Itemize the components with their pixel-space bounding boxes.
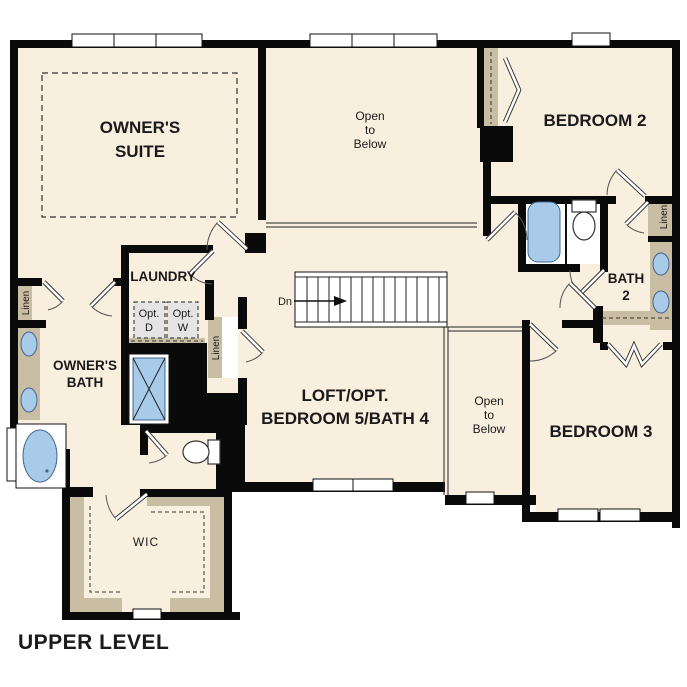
label-linen-owner: Linen <box>21 291 32 315</box>
window <box>466 492 494 504</box>
wall-bedroom2-bottom-b <box>606 196 616 204</box>
label-linen-hall: Linen <box>211 336 222 360</box>
window <box>353 479 393 491</box>
wall-linen-hall-right-a <box>238 297 247 329</box>
sink <box>21 332 37 356</box>
label-owners-suite-1: OWNER'S <box>100 118 181 137</box>
label-opt-dryer-1: Opt. <box>139 308 160 320</box>
wall-suite-right <box>258 48 266 220</box>
bathtub <box>23 430 57 482</box>
label-loft-1: LOFT/OPT. <box>302 386 389 405</box>
wall-bedroom3-top-a <box>522 320 530 330</box>
label-bath2-2: 2 <box>622 288 630 303</box>
plan-title: UPPER LEVEL <box>18 631 169 654</box>
wall-chunk-linen-toilet <box>207 393 247 425</box>
window <box>72 34 114 47</box>
bathtub-bath2 <box>528 202 560 262</box>
wic-shelf-right <box>210 492 224 612</box>
wall-laundry-left <box>121 245 129 345</box>
label-opt-washer-1: Opt. <box>173 308 194 320</box>
toilet-bath2 <box>572 200 596 240</box>
label-open-below-1c: Below <box>354 137 387 151</box>
label-bath2-1: BATH <box>608 271 645 286</box>
stairs <box>294 272 447 327</box>
label-open-below-2a: Open <box>474 394 503 408</box>
label-open-below-1b: to <box>365 123 375 137</box>
toilet-owner <box>183 440 220 464</box>
wall-linen-owner-bottom <box>18 320 46 328</box>
window <box>114 34 156 47</box>
floor-plan-page: OWNER'S SUITE Open to Below BEDROOM 2 BA… <box>0 0 687 687</box>
label-open-below-2b: to <box>484 408 494 422</box>
wall-toilet-left <box>140 425 148 455</box>
toilet-tank <box>572 200 596 212</box>
label-owners-bath-1: OWNER'S <box>53 358 117 373</box>
label-linen-bath2: Linen <box>659 205 670 229</box>
label-open-below-1a: Open <box>355 109 384 123</box>
label-opt-dryer-2: D <box>145 322 153 334</box>
window <box>310 34 352 47</box>
wall-wic-top-left <box>62 487 93 497</box>
wall-bath2-chunk <box>593 306 603 343</box>
label-bedroom2: BEDROOM 2 <box>544 111 647 130</box>
label-owners-suite-2: SUITE <box>115 142 165 161</box>
wall-bedroom2-west <box>483 160 491 236</box>
toilet-bowl <box>573 212 595 240</box>
window <box>572 33 610 46</box>
window <box>133 609 161 619</box>
window <box>156 34 202 47</box>
toilet-tank <box>208 440 220 464</box>
sink <box>653 291 669 313</box>
sink <box>21 388 37 412</box>
wall-bedroom2-closet-chunk <box>480 126 513 162</box>
wall-bedroom2-bottom-a <box>491 196 518 204</box>
window <box>394 34 437 47</box>
label-laundry: LAUNDRY <box>130 269 196 284</box>
label-open-below-2c: Below <box>473 422 506 436</box>
label-loft-2: BEDROOM 5/BATH 4 <box>261 409 429 428</box>
wall-hall-chunk <box>245 233 266 253</box>
wall-toilet-top <box>140 425 224 433</box>
wall-suite-bottom <box>121 245 213 253</box>
wall-chunk-wic-loft <box>224 425 245 490</box>
wall-bedroom3-top-b <box>562 320 593 328</box>
window <box>313 479 353 491</box>
wall-laundry-right <box>205 280 214 320</box>
wall-bedroom2-bottom-c <box>645 196 672 204</box>
label-stairs-dn: Dn <box>278 296 292 308</box>
wic-shelf-bottom-left <box>70 598 122 612</box>
wall-tubroom-bottom <box>518 264 580 272</box>
label-owners-bath-2: BATH <box>67 375 104 390</box>
wall-left <box>10 40 18 457</box>
label-wic: WIC <box>133 535 159 549</box>
wall-bath-top-left <box>18 278 42 286</box>
label-opt-washer-2: W <box>178 322 189 334</box>
wall-right <box>672 40 680 528</box>
wall-linen-hall-right-b <box>238 378 247 393</box>
window <box>600 509 640 521</box>
window <box>352 34 394 47</box>
wall-tubroom-left <box>518 196 526 272</box>
window <box>558 509 598 521</box>
sink <box>653 253 669 275</box>
wall-wic-top-right <box>140 489 232 497</box>
bathtub-drain <box>45 469 48 472</box>
label-bedroom3: BEDROOM 3 <box>550 422 653 441</box>
wall-open1-right <box>477 48 484 128</box>
wall-bedroom3-left <box>522 330 530 512</box>
wall-linen-bath2-bottom <box>648 236 672 242</box>
linen-hall-floor <box>222 317 238 378</box>
wall-tubroom-right <box>600 196 608 272</box>
wic-shelf-left <box>70 492 84 612</box>
upper-level-floor-plan: OWNER'S SUITE Open to Below BEDROOM 2 BA… <box>0 0 687 687</box>
wall-closet3-stub-right <box>663 342 672 350</box>
toilet-bowl <box>183 441 209 463</box>
